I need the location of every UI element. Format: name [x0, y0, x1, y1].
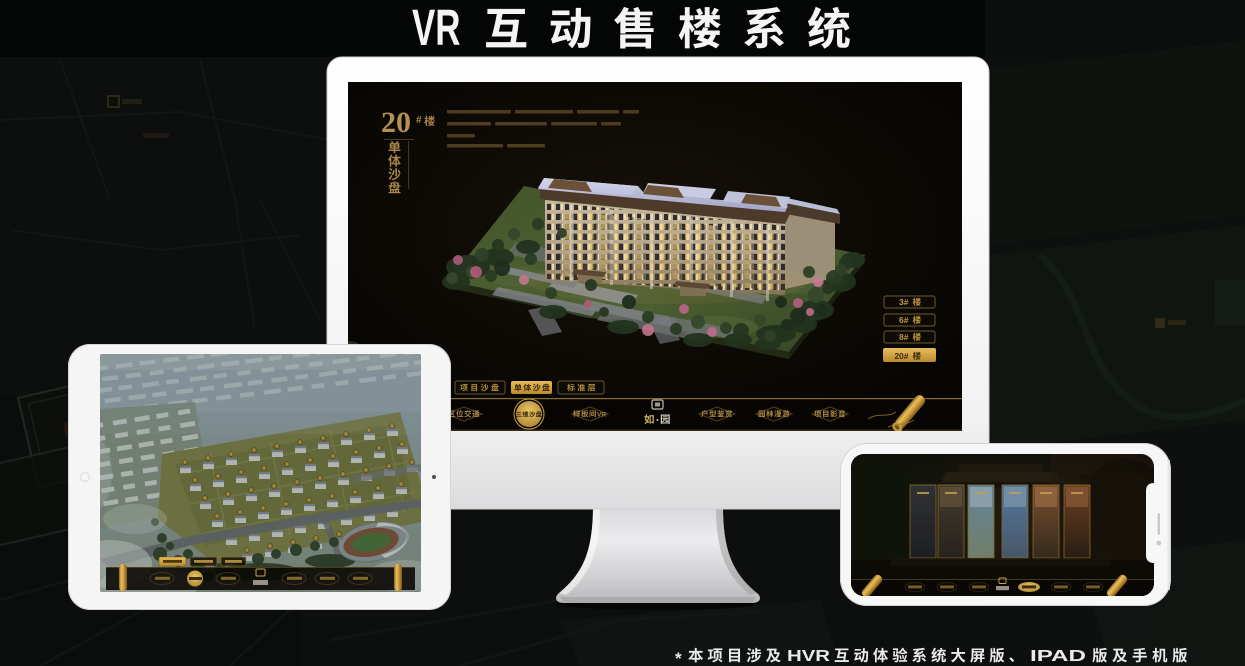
- svg-text:HVR: HVR: [787, 648, 831, 665]
- svg-text:VR: VR: [412, 0, 461, 56]
- svg-text:#: #: [416, 115, 422, 126]
- svg-text:*: *: [675, 649, 682, 666]
- svg-text:3#: 3#: [899, 297, 909, 307]
- svg-text:VR: VR: [597, 412, 606, 419]
- svg-text:20: 20: [381, 106, 411, 139]
- svg-text:6#: 6#: [899, 315, 909, 325]
- svg-text:20#: 20#: [894, 351, 908, 361]
- svg-text:8#: 8#: [899, 332, 909, 342]
- svg-text:IPAD: IPAD: [1030, 648, 1086, 665]
